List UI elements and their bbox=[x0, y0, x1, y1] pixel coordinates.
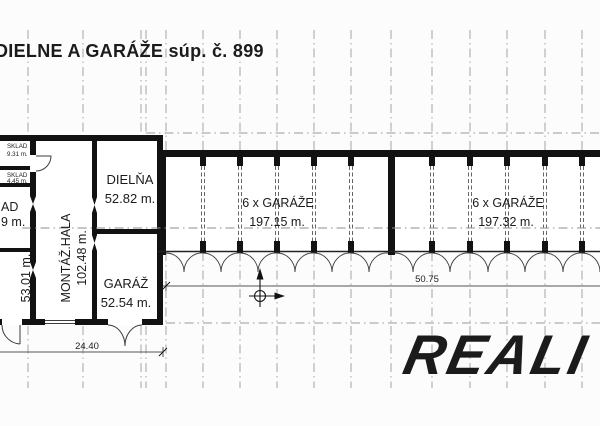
room-label-garaze1: 6 x GARÁŽE bbox=[242, 195, 314, 210]
room-area-sklad1: 9.31 m. bbox=[7, 151, 28, 158]
dimension-garages-width: 50.75 bbox=[415, 274, 439, 285]
room-label-sklad3-fragment: AD bbox=[1, 200, 18, 214]
dimension-building-width: 24.40 bbox=[75, 341, 99, 352]
room-label-dielna: DIELŇA bbox=[107, 172, 154, 187]
room-label-garaz: GARÁŽ bbox=[104, 276, 149, 291]
room-label-garaze2: 6 x GARÁŽE bbox=[472, 195, 544, 210]
room-area-hala: 102.48 m. bbox=[75, 230, 89, 286]
garage-door-arcs-icon bbox=[166, 253, 600, 272]
room-label-sklad1: SKLAD bbox=[7, 143, 28, 150]
floor-plan-svg: DIELNE A GARÁŽE súp. č. 899 SKLAD 9.31 m… bbox=[0, 0, 600, 426]
room-area-garaze1: 197.15 m. bbox=[249, 215, 305, 229]
garage-strip bbox=[158, 150, 600, 272]
room-area-garaze2: 197.32 m. bbox=[478, 215, 534, 229]
room-area-sklad2: 4.45 m. bbox=[7, 178, 28, 185]
floor-plan-page: DIELNE A GARÁŽE súp. č. 899 SKLAD 9.31 m… bbox=[0, 0, 600, 426]
axis-origin-icon bbox=[249, 268, 285, 307]
room-label-hala: MONTÁŽ.HALA bbox=[58, 213, 73, 303]
room-area-dielna: 52.82 m. bbox=[105, 191, 156, 206]
room-area-sklad3-fragment: 9 m. bbox=[1, 215, 25, 229]
room-area-53: 53.01 m. bbox=[19, 254, 33, 303]
room-area-garaz: 52.54 m. bbox=[101, 295, 152, 310]
realitna-logo: REALI bbox=[398, 324, 594, 386]
page-title: DIELNE A GARÁŽE súp. č. 899 bbox=[0, 40, 264, 61]
